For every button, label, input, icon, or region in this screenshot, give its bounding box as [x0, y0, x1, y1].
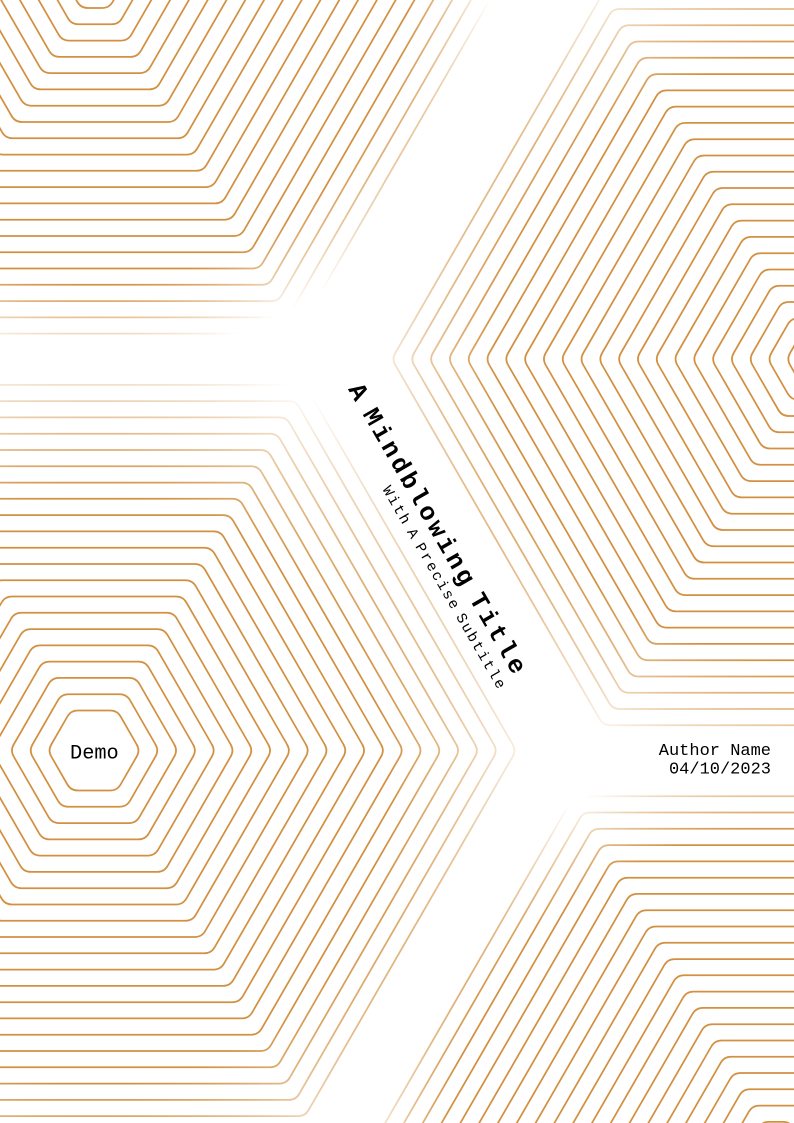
svg-text:04/10/2023: 04/10/2023 — [669, 761, 771, 780]
svg-text:Demo: Demo — [70, 742, 119, 765]
svg-text:Author Name: Author Name — [659, 742, 771, 761]
